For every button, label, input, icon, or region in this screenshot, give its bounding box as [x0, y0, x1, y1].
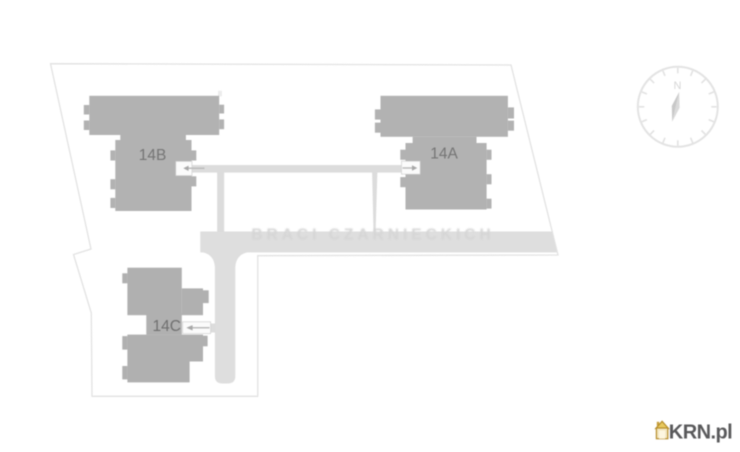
svg-text:14B: 14B [139, 147, 167, 164]
svg-text:KRN.pl: KRN.pl [669, 422, 732, 444]
svg-text:BRACI CZARNIECKICH: BRACI CZARNIECKICH [251, 227, 494, 244]
svg-text:14A: 14A [430, 146, 458, 163]
svg-text:N: N [674, 80, 682, 92]
svg-text:14C: 14C [152, 318, 180, 335]
